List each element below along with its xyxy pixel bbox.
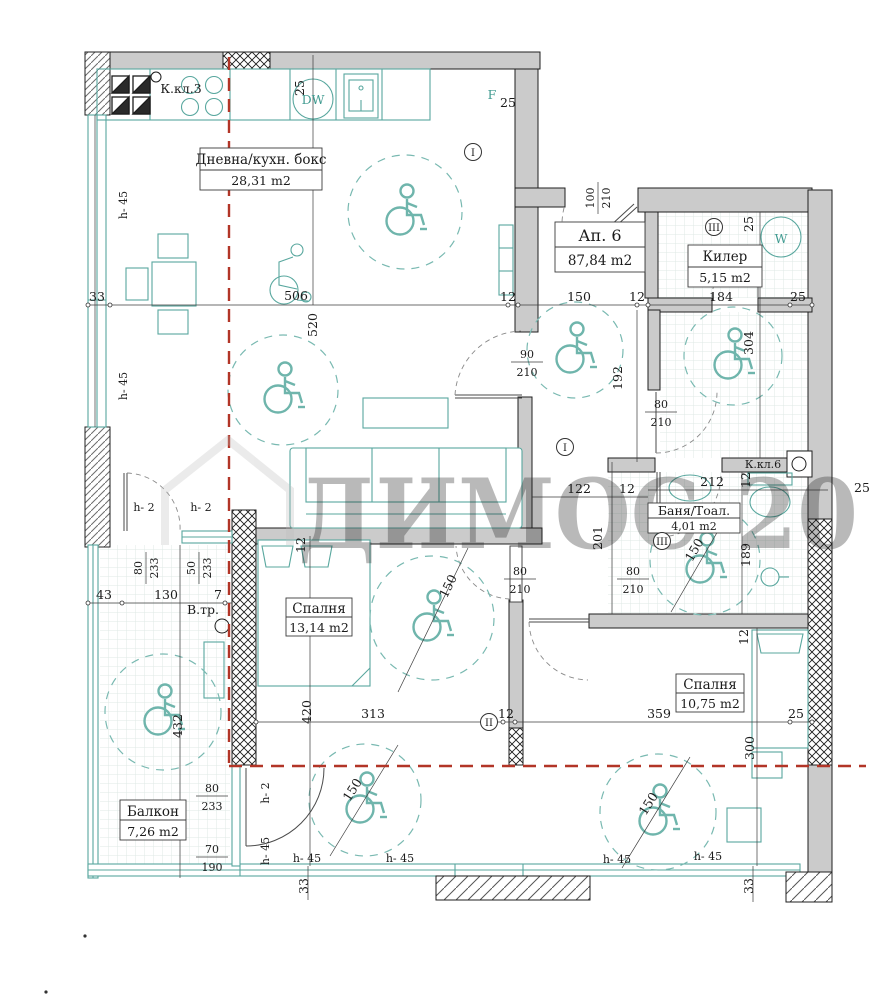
dim-12-top-b2: 12 bbox=[629, 289, 645, 304]
axis-f-label: F bbox=[488, 87, 497, 102]
dim-12-hall: 12 bbox=[619, 481, 635, 496]
dim-80-b: 80 bbox=[513, 565, 527, 578]
dim-25-right: 25 bbox=[854, 480, 870, 495]
dim-233-w2: 233 bbox=[201, 558, 214, 579]
dim-33-left: 33 bbox=[89, 289, 105, 304]
dim-hall-door: 90 210 bbox=[511, 348, 543, 379]
wall-right-lower bbox=[808, 765, 832, 872]
marker-II-bottom: II bbox=[481, 714, 498, 731]
h45-label-7: h- 45 bbox=[694, 850, 722, 863]
vent-shaft-label: В.тр. bbox=[187, 602, 219, 617]
chair bbox=[158, 310, 188, 334]
marker-III2-text: III bbox=[656, 537, 668, 548]
shelf-unit bbox=[499, 225, 513, 295]
marker-III-bath: III bbox=[654, 533, 671, 550]
marker-I-text: I bbox=[471, 148, 475, 159]
dim-80-c: 80 bbox=[626, 565, 640, 578]
dim-25-storage: 25 bbox=[741, 216, 756, 232]
vent-shaft-wall bbox=[232, 510, 256, 765]
bedroom1-label: Спалня 13,14 m2 bbox=[286, 598, 352, 636]
dim-201: 201 bbox=[590, 526, 605, 550]
kitchen-shaft-label: К.кл.3 bbox=[160, 81, 201, 96]
marker-II-text: II bbox=[485, 718, 493, 729]
window-left bbox=[88, 115, 106, 427]
slab-hatch-right bbox=[786, 872, 832, 902]
dim-212: 212 bbox=[700, 474, 724, 489]
window-balcony-bedroom-divider bbox=[232, 765, 240, 866]
bath-label: Баня/Тоал. 4,01 m2 bbox=[648, 503, 740, 533]
dim-12-rot-c: 12 bbox=[736, 629, 751, 645]
dim-359: 359 bbox=[647, 706, 671, 721]
chair bbox=[158, 234, 188, 258]
bedroom1-name: Спалня bbox=[292, 601, 345, 617]
storage-label: Килер 5,15 m2 bbox=[688, 245, 762, 287]
h45-label-2: h- 45 bbox=[117, 372, 130, 400]
dim-190: 190 bbox=[202, 861, 223, 874]
marker-I-hall: I bbox=[557, 439, 574, 456]
living-room-label: Дневна/кухн. бокс 28,31 m2 bbox=[196, 148, 327, 190]
wall-left-lower bbox=[85, 427, 110, 547]
wall-top bbox=[95, 52, 540, 69]
marker-I2-text: I bbox=[563, 443, 567, 454]
h2-label-3: h- 2 bbox=[259, 782, 272, 803]
h2-label-2: h- 2 bbox=[190, 501, 211, 514]
bedroom1-area: 13,14 m2 bbox=[289, 620, 349, 635]
balcony-label: Балкон 7,26 m2 bbox=[120, 800, 186, 840]
living-room-area: 28,31 m2 bbox=[231, 173, 291, 188]
window-bottom-band bbox=[88, 864, 800, 876]
dim-150-c4: 150 bbox=[436, 572, 460, 600]
living-hall-door bbox=[455, 331, 522, 398]
bath-name: Баня/Тоал. bbox=[658, 503, 730, 518]
h2-label-1: h- 2 bbox=[133, 501, 154, 514]
floor-plan-canvas: ДИМОС-20 Дневна/кухн. бокс 28,31 m2 Ап. … bbox=[0, 0, 887, 1000]
apartment-label: Ап. 6 87,84 m2 bbox=[555, 222, 645, 272]
dim-43: 43 bbox=[96, 587, 112, 602]
dishwasher-label: DW bbox=[302, 92, 325, 107]
bedroom2-door bbox=[529, 619, 589, 680]
dim-432: 432 bbox=[170, 714, 185, 738]
dim-100: 100 bbox=[584, 188, 597, 209]
wall-entry-step bbox=[515, 188, 565, 207]
storage-area: 5,15 m2 bbox=[699, 270, 751, 285]
wall-bath-bedroom2 bbox=[589, 614, 808, 628]
bedroom2-name: Спалня bbox=[683, 677, 736, 693]
dim-210-a: 210 bbox=[651, 416, 672, 429]
dim-233-w1: 233 bbox=[148, 558, 161, 579]
dim-33-rot-a: 33 bbox=[296, 878, 311, 894]
bath-area: 4,01 m2 bbox=[671, 520, 716, 533]
h45-label-4: h- 45 bbox=[293, 852, 321, 865]
storage-name: Килер bbox=[703, 249, 748, 265]
wall-hall-corridor bbox=[648, 310, 660, 390]
dim-210-c: 210 bbox=[623, 583, 644, 596]
sink-icon bbox=[344, 74, 378, 118]
apartment-area: 87,84 m2 bbox=[568, 253, 632, 269]
dim-150-c7: 150 bbox=[636, 789, 661, 817]
bath-shaft-label: К.кл.6 bbox=[745, 458, 781, 471]
dim-210-hall: 210 bbox=[517, 366, 538, 379]
dim-25-bottom: 25 bbox=[788, 706, 804, 721]
dim-184: 184 bbox=[709, 289, 733, 304]
dim-210-b: 210 bbox=[510, 583, 531, 596]
marker-III-text: III bbox=[708, 223, 720, 234]
wall-vestibule-storage bbox=[645, 212, 658, 298]
h45-label-5: h- 45 bbox=[386, 852, 414, 865]
dim-50-w2: 50 bbox=[185, 561, 198, 575]
washer-label: W bbox=[775, 231, 788, 246]
dim-520: 520 bbox=[305, 313, 320, 337]
dim-122: 122 bbox=[567, 481, 591, 496]
dim-80-w1: 80 bbox=[132, 561, 145, 575]
dim-25-top: 25 bbox=[790, 289, 806, 304]
desk bbox=[727, 808, 761, 842]
h45-label-6: h- 45 bbox=[603, 853, 631, 866]
dim-80-balc: 80 bbox=[205, 782, 219, 795]
dim-12-top-a: 12 bbox=[500, 289, 516, 304]
balcony-area: 7,26 m2 bbox=[127, 824, 179, 839]
page-dot-1 bbox=[83, 934, 86, 937]
page-dot-2 bbox=[44, 990, 47, 993]
dim-150-top: 150 bbox=[567, 289, 591, 304]
balcony-name: Балкон bbox=[127, 804, 179, 820]
corridor-floor bbox=[660, 312, 808, 458]
dim-12-bottom: 12 bbox=[498, 706, 514, 721]
dim-420: 420 bbox=[299, 700, 314, 724]
floor-plan-drawing: ДИМОС-20 Дневна/кухн. бокс 28,31 m2 Ап. … bbox=[0, 0, 887, 1000]
dim-300: 300 bbox=[742, 736, 757, 760]
dining-set bbox=[126, 234, 196, 334]
h45-label-3: h- 45 bbox=[259, 837, 272, 865]
slab-hatch-left bbox=[436, 876, 590, 900]
wall-storage-top bbox=[638, 188, 812, 212]
dim-80-a: 80 bbox=[654, 398, 668, 411]
chair bbox=[126, 268, 148, 300]
dim-entry-door: 100 210 bbox=[584, 182, 613, 214]
coffee-table bbox=[363, 398, 448, 428]
bedroom2-area: 10,75 m2 bbox=[680, 696, 740, 711]
dim-25-axis-f: 25 bbox=[500, 95, 516, 110]
dim-12-rot-b: 12 bbox=[293, 537, 308, 553]
dim-304: 304 bbox=[741, 331, 756, 355]
bed2 bbox=[752, 630, 808, 778]
dim-189: 189 bbox=[738, 543, 753, 567]
kitchen bbox=[97, 69, 430, 120]
dim-210-entry: 210 bbox=[600, 188, 613, 209]
window-living-balcony bbox=[182, 531, 232, 543]
wall-bedroom1-right-boundary bbox=[509, 728, 523, 765]
dim-192: 192 bbox=[610, 366, 625, 390]
dim-12-rot-a: 12 bbox=[738, 472, 753, 488]
dim-130: 130 bbox=[154, 587, 178, 602]
living-room-name: Дневна/кухн. бокс bbox=[196, 152, 327, 168]
stove-icon bbox=[112, 76, 150, 114]
dim-90: 90 bbox=[520, 348, 534, 361]
marker-I-kitchen: I bbox=[465, 144, 482, 161]
bedroom2-label: Спалня 10,75 m2 bbox=[676, 674, 744, 712]
h45-label-1: h- 45 bbox=[117, 191, 130, 219]
dining-table bbox=[152, 262, 196, 306]
dim-313: 313 bbox=[361, 706, 385, 721]
watermark-text: ДИМОС-20 bbox=[298, 458, 858, 571]
dim-70: 70 bbox=[205, 843, 219, 856]
dim-33-rot-b: 33 bbox=[741, 878, 756, 894]
dim-233-balc: 233 bbox=[202, 800, 223, 813]
marker-III-storage: III bbox=[706, 219, 723, 236]
apartment-number: Ап. 6 bbox=[578, 226, 621, 245]
dim-7: 7 bbox=[214, 587, 222, 602]
dim-506: 506 bbox=[284, 288, 308, 303]
